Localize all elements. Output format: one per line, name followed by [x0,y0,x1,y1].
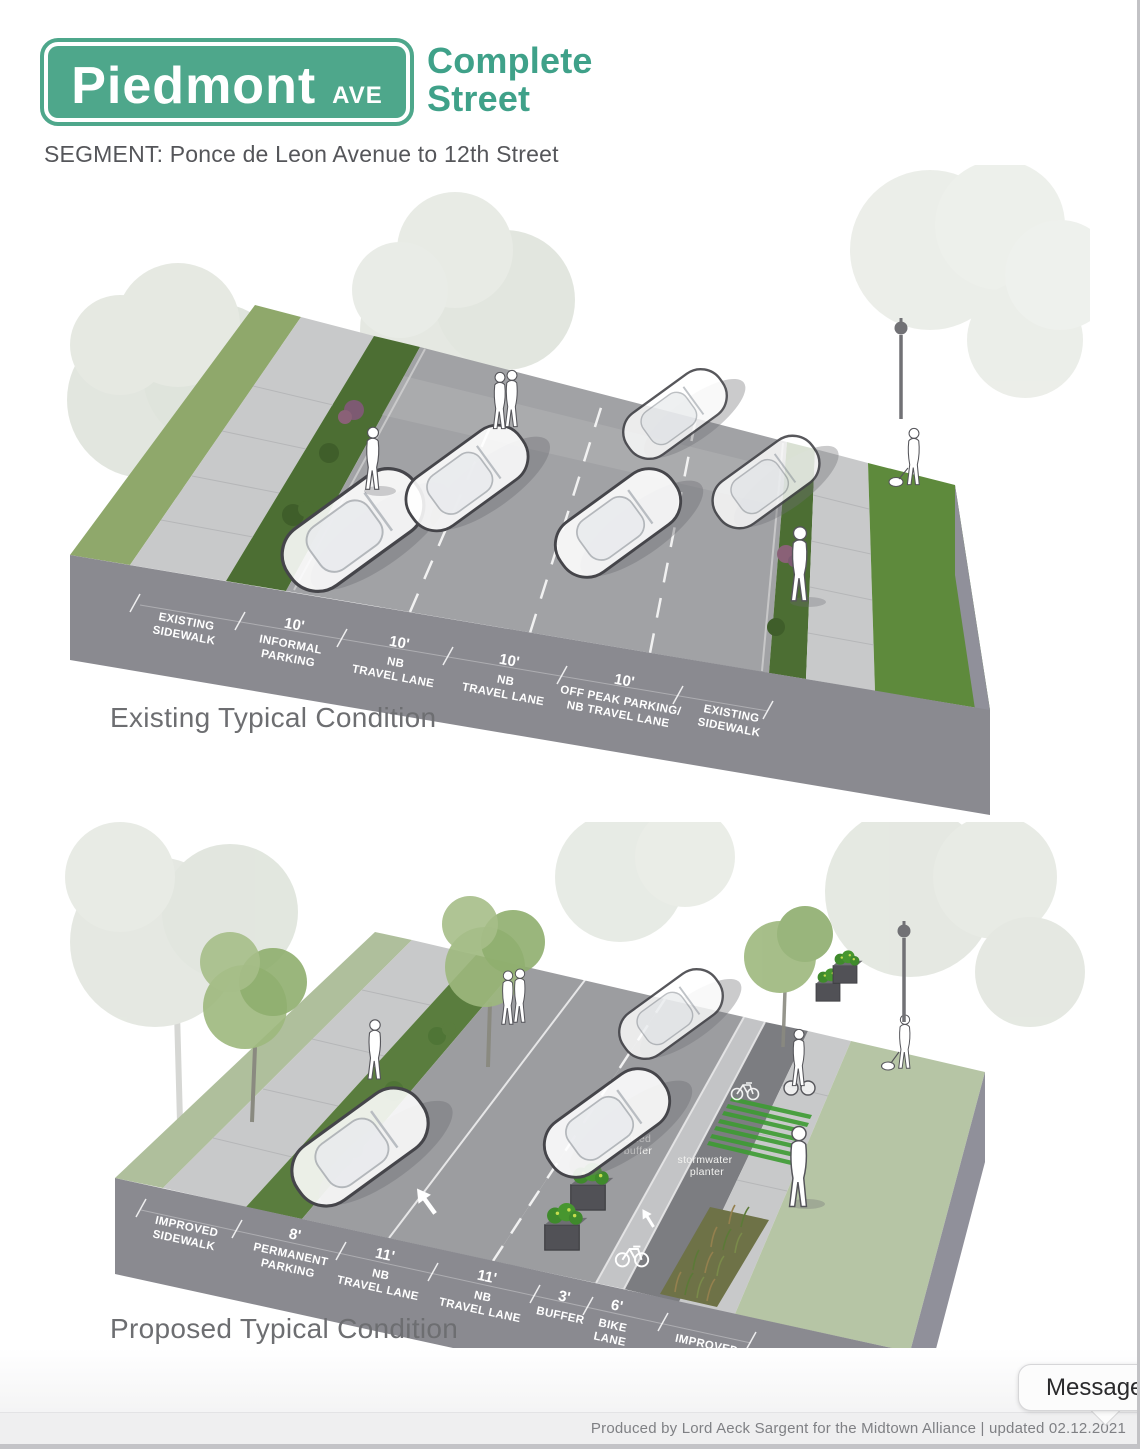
brand-line-1: Complete [427,42,593,80]
faded-tree [850,165,1090,398]
proposed-caption: Proposed Typical Condition [110,1313,458,1345]
dog [882,1062,895,1070]
street-sign-panel: Piedmont AVE [48,46,406,118]
street-lamp [895,318,908,419]
dog [889,478,903,487]
stormwater-planter-label: stormwater [678,1154,733,1166]
svg-text:planter: planter [690,1166,724,1178]
page: Piedmont AVE Complete Street SEGMENT: Po… [0,0,1140,1449]
faded-tree [555,822,735,942]
street-sign: Piedmont AVE [40,38,414,126]
faded-tree [825,822,1085,1027]
footer-credit: Produced by Lord Aeck Sargent for the Mi… [591,1420,1126,1437]
window-bottom-edge [0,1444,1140,1449]
svg-text:10': 10' [388,633,411,653]
existing-caption: Existing Typical Condition [110,702,436,734]
message-button-label: Message [1046,1374,1140,1402]
street-sign-suffix: AVE [332,82,383,110]
bottom-fade [0,1348,1140,1412]
segment-subtitle: SEGMENT: Ponce de Leon Avenue to 12th St… [44,141,559,168]
message-button[interactable]: Message [1018,1364,1140,1411]
svg-text:10': 10' [613,671,636,691]
brand-line-2: Street [427,80,593,118]
brand-title: Complete Street [427,42,593,118]
svg-text:10': 10' [498,651,521,671]
street-sign-name: Piedmont [71,54,316,118]
svg-text:10': 10' [283,615,306,635]
